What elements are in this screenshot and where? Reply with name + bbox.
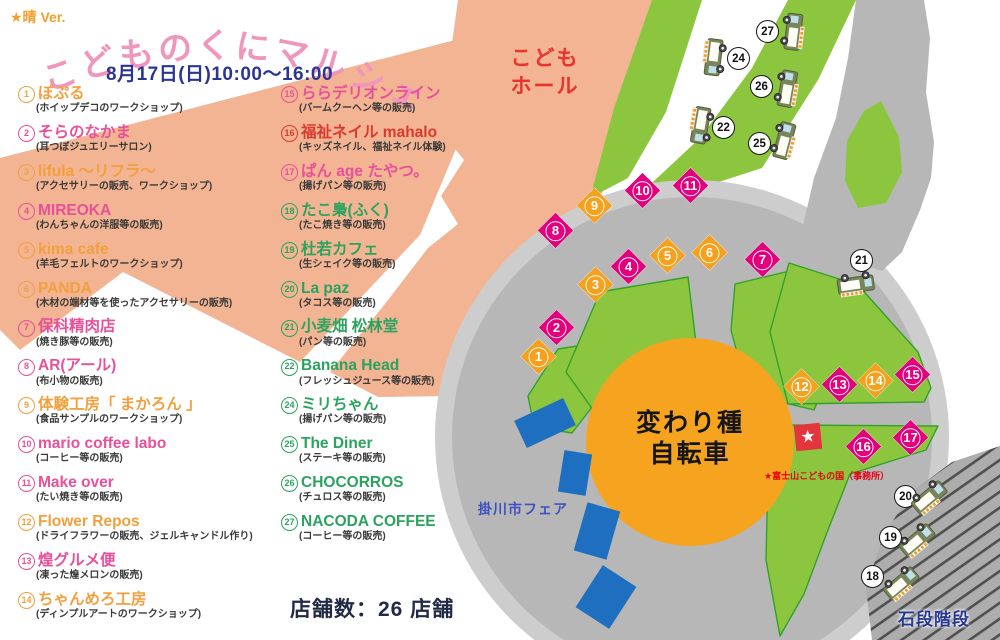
vendor-desc: (布小物の販売) <box>36 377 283 388</box>
kitchen-car-icon <box>695 34 728 81</box>
marker-number: 8 <box>543 218 568 243</box>
vendor-desc: (焼き豚等の販売) <box>36 338 283 349</box>
marker-number: 1 <box>526 344 551 369</box>
stairs-label: 石段階段 <box>898 605 970 630</box>
vendor-item-5: 5kima cafe(羊毛フェルトのワークショップ) <box>18 242 283 271</box>
vendor-desc: (タコス等の販売) <box>299 299 546 310</box>
map-truck-marker-27: 27 <box>756 20 779 43</box>
vendor-item-16: 16福祉ネイル mahalo(キッズネイル、福祉ネイル体験) <box>281 125 546 154</box>
marker-number: 13 <box>827 372 852 397</box>
map-truck-marker-22: 22 <box>712 116 735 139</box>
vendor-number: 17 <box>281 164 298 181</box>
vendor-name: 13煌グルメ便 <box>18 553 283 570</box>
vendor-desc: (アクセサリーの販売、ワークショップ) <box>36 182 283 193</box>
vendor-desc: (キッズネイル、福祉ネイル体験) <box>299 143 546 154</box>
vendor-desc: (たこ焼き等の販売) <box>299 221 546 232</box>
vendor-name: 10mario coffee labo <box>18 436 283 453</box>
vendor-number: 2 <box>18 125 35 142</box>
office-star-icon: ★ <box>794 423 823 452</box>
bicycle-label-line1: 変わり種 <box>636 409 744 437</box>
vendor-item-3: 3lifula ～リフラ～(アクセサリーの販売、ワークショップ) <box>18 164 283 193</box>
vendor-item-11: 11Make over(たい焼き等の販売) <box>18 475 283 504</box>
vendor-number: 10 <box>18 436 35 453</box>
marker-number: 4 <box>616 254 641 279</box>
map-booth-marker-3: 3 <box>578 267 613 302</box>
vendor-number: 27 <box>281 514 298 531</box>
vendor-name: 22Banana Head <box>281 358 546 375</box>
vendor-item-1: 1ぽぷる(ホイップデコのワークショップ) <box>18 86 283 115</box>
office-label: ★富士山こどもの国（事務所） <box>764 469 889 482</box>
map-truck-marker-21: 21 <box>850 249 873 272</box>
vendor-number: 8 <box>18 359 35 376</box>
map-truck-marker-26: 26 <box>750 75 773 98</box>
map-booth-marker-14: 14 <box>858 363 893 398</box>
map-booth-marker-17: 17 <box>893 420 928 455</box>
vendor-item-2: 2そらのなかま(耳つぼジュエリーサロン) <box>18 125 283 154</box>
kitchen-car-27 <box>778 7 811 54</box>
vendor-desc: (たい焼き等の販売) <box>36 493 283 504</box>
vendor-desc: (食品サンプルのワークショップ) <box>36 415 283 426</box>
vendor-number: 18 <box>281 203 298 220</box>
vendor-number: 5 <box>18 242 35 259</box>
map-booth-marker-8: 8 <box>538 213 573 248</box>
marker-number: 12 <box>789 374 814 399</box>
marker-number: 15 <box>900 362 925 387</box>
vendor-item-14: 14ちゃんめろ工房(ディンプルアートのワークショップ) <box>18 592 283 621</box>
map-booth-marker-13: 13 <box>822 367 857 402</box>
vendor-name: 11Make over <box>18 475 283 492</box>
vendor-item-20: 20La paz(タコス等の販売) <box>281 281 546 310</box>
map-booth-marker-9: 9 <box>577 188 612 223</box>
vendor-name: 24ミリちゃん <box>281 397 546 414</box>
vendor-number: 6 <box>18 281 35 298</box>
marker-number: 6 <box>697 240 722 265</box>
marker-number: 17 <box>898 425 923 450</box>
vendor-number: 24 <box>281 397 298 414</box>
vendor-name: 18たこ梟(ふく) <box>281 203 546 220</box>
vendor-desc: (ステーキ等の販売) <box>299 454 546 465</box>
vendor-item-18: 18たこ梟(ふく)(たこ焼き等の販売) <box>281 203 546 232</box>
vendor-name: 5kima cafe <box>18 242 283 259</box>
vendor-desc: (揚げパン等の販売) <box>299 415 546 426</box>
vendor-name: 4MIREOKA <box>18 203 283 220</box>
marker-number: 9 <box>582 193 607 218</box>
store-count: 店舗数：26 店舗 <box>290 593 454 623</box>
map-booth-marker-5: 5 <box>650 238 685 273</box>
vendor-name: 7保科精肉店 <box>18 319 283 336</box>
vendor-name: 17ぱん age たやつ。 <box>281 164 546 181</box>
marker-number: 2 <box>544 315 569 340</box>
event-flyer: ★晴 Ver. こどものくにマルシェ 8月17日(日)10:00～16:00 1… <box>0 0 1000 640</box>
vendor-item-22: 22Banana Head(フレッシュジュース等の販売) <box>281 358 546 387</box>
vendor-number: 7 <box>18 320 35 337</box>
vendor-name: 16福祉ネイル mahalo <box>281 125 546 142</box>
vendor-desc: (羊毛フェルトのワークショップ) <box>36 260 283 271</box>
hall-label-line2: ホール <box>511 75 580 98</box>
vendor-desc: (フレッシュジュース等の販売) <box>299 377 546 388</box>
map-truck-marker-24: 24 <box>727 47 750 70</box>
vendor-desc: (ドライフラワーの販売、ジェルキャンドル作り) <box>36 532 283 543</box>
vendor-item-13: 13煌グルメ便(凍った煌メロンの販売) <box>18 553 283 582</box>
kitchen-car-24 <box>695 34 728 81</box>
vendor-number: 14 <box>18 592 35 609</box>
vendor-desc: (コーヒー等の販売) <box>299 532 546 543</box>
vendor-item-17: 17ぱん age たやつ。(揚げパン等の販売) <box>281 164 546 193</box>
map-booth-marker-12: 12 <box>784 369 819 404</box>
vendor-number: 21 <box>281 320 298 337</box>
marker-number: 11 <box>678 173 703 198</box>
map-booth-marker-16: 16 <box>846 429 881 464</box>
vendor-number: 20 <box>281 281 298 298</box>
vendor-number: 12 <box>18 514 35 531</box>
map-booth-marker-10: 10 <box>625 173 660 208</box>
vendor-number: 13 <box>18 553 35 570</box>
map-booth-marker-7: 7 <box>745 242 780 277</box>
vendor-name: 12Flower Repos <box>18 514 283 531</box>
vendor-desc: (木材の端材等を使ったアクセサリーの販売) <box>36 299 283 310</box>
vendor-number: 11 <box>18 475 35 492</box>
vendor-desc: (凍った煌メロンの販売) <box>36 571 283 582</box>
vendor-desc: (コーヒー等の販売) <box>36 454 283 465</box>
vendor-number: 16 <box>281 125 298 142</box>
hall-label: こども ホール <box>490 45 600 102</box>
vendor-name: 26CHOCORROS <box>281 475 546 492</box>
vendor-number: 3 <box>18 164 35 181</box>
vendor-desc: (わんちゃんの洋服等の販売) <box>36 221 283 232</box>
marker-number: 14 <box>863 368 888 393</box>
vendor-name: 6PANDA <box>18 281 283 298</box>
vendor-name: 9体験工房「 まかろん 」 <box>18 397 283 414</box>
vendor-desc: (生シェイク等の販売) <box>299 260 546 271</box>
vendor-number: 25 <box>281 436 298 453</box>
marker-number: 10 <box>630 178 655 203</box>
vendor-number: 4 <box>18 203 35 220</box>
vendor-number: 26 <box>281 475 298 492</box>
vendor-name: 14ちゃんめろ工房 <box>18 592 283 609</box>
vendor-name: 2そらのなかま <box>18 125 283 142</box>
vendor-name: 8AR(アール) <box>18 358 283 375</box>
marker-number: 16 <box>851 434 876 459</box>
vendor-item-12: 12Flower Repos(ドライフラワーの販売、ジェルキャンドル作り) <box>18 514 283 543</box>
vendor-desc: (耳つぼジュエリーサロン) <box>36 143 283 154</box>
vendor-item-24: 24ミリちゃん(揚げパン等の販売) <box>281 397 546 426</box>
vendor-item-8: 8AR(アール)(布小物の販売) <box>18 358 283 387</box>
kitchen-car-icon <box>778 7 811 54</box>
map-booth-marker-6: 6 <box>692 235 727 270</box>
vendor-item-7: 7保科精肉店(焼き豚等の販売) <box>18 319 283 348</box>
vendor-item-4: 4MIREOKA(わんちゃんの洋服等の販売) <box>18 203 283 232</box>
map-booth-marker-15: 15 <box>895 357 930 392</box>
vendor-number: 19 <box>281 242 298 259</box>
marker-number: 5 <box>655 243 680 268</box>
map-booth-marker-2: 2 <box>539 310 574 345</box>
vendor-name: 1ぽぷる <box>18 86 283 103</box>
map-booth-marker-1: 1 <box>521 339 556 374</box>
vendor-name: 3lifula ～リフラ～ <box>18 164 283 181</box>
vendor-number: 15 <box>281 86 298 103</box>
vendor-desc: (ホイップデコのワークショップ) <box>36 104 283 115</box>
vendor-name: 21小麦畑 松林堂 <box>281 319 546 336</box>
fair-label: 掛川市フェア <box>478 499 568 519</box>
marker-number: 3 <box>583 272 608 297</box>
vendor-desc: (揚げパン等の販売) <box>299 182 546 193</box>
marker-number: 7 <box>750 247 775 272</box>
event-date: 8月17日(日)10:00～16:00 <box>106 59 356 86</box>
vendor-name: 19杜若カフェ <box>281 242 546 259</box>
bicycle-label: 変わり種 自転車 <box>610 408 770 471</box>
version-label: ★晴 Ver. <box>10 7 65 27</box>
bicycle-label-line2: 自転車 <box>649 440 730 468</box>
vendor-number: 22 <box>281 359 298 376</box>
vendor-item-21: 21小麦畑 松林堂(パン等の販売) <box>281 319 546 348</box>
vendor-number: 9 <box>18 397 35 414</box>
map-booth-marker-4: 4 <box>611 249 646 284</box>
hall-label-line1: こども <box>511 47 580 70</box>
vendor-item-6: 6PANDA(木材の端材等を使ったアクセサリーの販売) <box>18 281 283 310</box>
vendor-item-9: 9体験工房「 まかろん 」(食品サンプルのワークショップ) <box>18 397 283 426</box>
map-booth-marker-11: 11 <box>673 168 708 203</box>
vendor-desc: (ディンプルアートのワークショップ) <box>36 610 283 621</box>
vendor-item-19: 19杜若カフェ(生シェイク等の販売) <box>281 242 546 271</box>
vendor-name: 20La paz <box>281 281 546 298</box>
vendor-desc: (バームクーヘン等の販売) <box>299 104 546 115</box>
vendor-desc: (パン等の販売) <box>299 338 546 349</box>
vendor-item-25: 25The Diner(ステーキ等の販売) <box>281 436 546 465</box>
vendor-name: 25The Diner <box>281 436 546 453</box>
vendor-item-10: 10mario coffee labo(コーヒー等の販売) <box>18 436 283 465</box>
vendor-number: 1 <box>18 86 35 103</box>
